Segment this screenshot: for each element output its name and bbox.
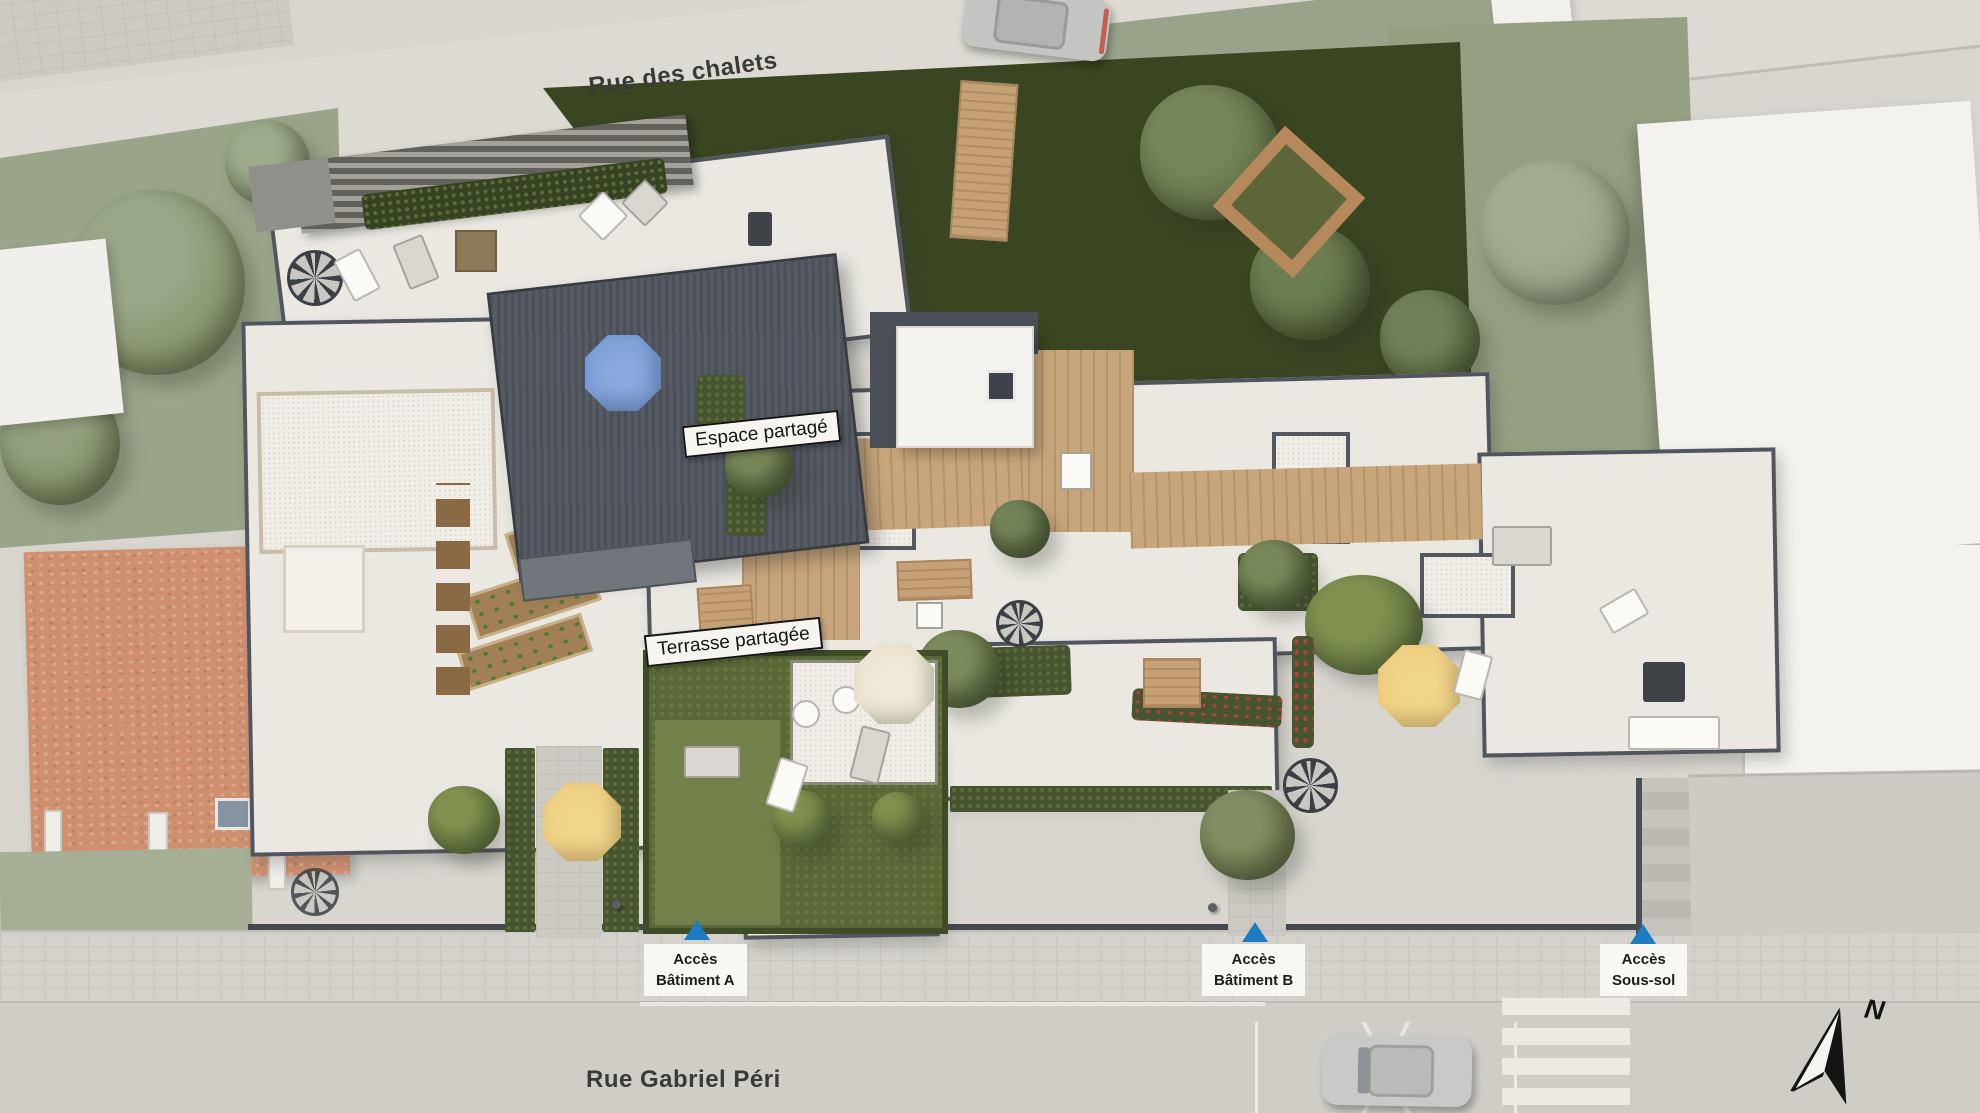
parasol — [1378, 645, 1460, 727]
access-arrow-icon — [1630, 924, 1656, 944]
access-sous-sol-label: Accès Sous-sol — [1600, 944, 1687, 996]
spiral-staircase — [287, 250, 343, 306]
perimeter-wall — [248, 924, 1710, 930]
site-plan: Rue des chalets Rue Gabriel Péri Espace … — [0, 0, 1980, 1113]
tree — [1238, 540, 1312, 610]
table — [748, 212, 772, 246]
neighboring-building-left — [0, 239, 124, 427]
sofa — [1628, 716, 1720, 750]
roof-window — [986, 370, 1016, 402]
planter-box — [455, 230, 497, 272]
roof-vent — [1060, 452, 1092, 490]
lamp-post — [1208, 903, 1217, 912]
grass-strip-bottom-left — [0, 848, 253, 936]
spiral-staircase — [1283, 758, 1338, 813]
road-marking-line — [640, 1002, 1265, 1006]
access-line1: Accès — [1622, 951, 1666, 968]
street-label-bottom: Rue Gabriel Péri — [586, 1066, 781, 1094]
table — [1143, 658, 1201, 708]
tree — [872, 792, 924, 842]
hedge — [505, 748, 535, 932]
access-arrow-icon — [684, 920, 710, 940]
spiral-staircase — [291, 868, 339, 916]
tree — [1200, 790, 1295, 880]
rooflight-patch — [283, 545, 365, 633]
car-roof — [1368, 1044, 1435, 1097]
table — [684, 746, 740, 778]
access-line2: Bâtiment B — [1214, 972, 1293, 989]
access-line2: Sous-sol — [1612, 972, 1675, 989]
access-batiment-b-label: Accès Bâtiment B — [1202, 944, 1305, 996]
parasol — [854, 644, 934, 724]
flower-planter — [1292, 636, 1314, 748]
table — [1643, 662, 1685, 702]
tree — [1480, 160, 1630, 305]
access-batiment-a-label: Accès Bâtiment A — [644, 944, 747, 996]
driveway — [1689, 769, 1980, 936]
tree — [990, 500, 1050, 558]
car-windshield — [1358, 1047, 1371, 1093]
access-arrow-icon — [1242, 922, 1268, 942]
spiral-staircase — [996, 600, 1043, 647]
access-line2: Bâtiment A — [656, 972, 735, 989]
entry-canopy — [248, 157, 335, 232]
tree — [428, 786, 500, 854]
wood-raft — [950, 80, 1019, 242]
bench-row — [436, 483, 470, 695]
crosswalk — [1502, 998, 1630, 1110]
hanging-chair — [792, 700, 820, 728]
car — [1321, 1035, 1472, 1108]
lamp-post — [612, 900, 621, 909]
skylight — [215, 798, 251, 830]
rue-gabriel-peri-road — [0, 1003, 1980, 1113]
table — [896, 559, 972, 602]
access-line1: Accès — [673, 951, 717, 968]
parasol — [543, 783, 621, 861]
wood-deck — [1129, 463, 1483, 548]
parasol — [585, 335, 661, 411]
north-label: N — [1863, 994, 1887, 1027]
access-line1: Accès — [1231, 951, 1275, 968]
car-roof — [992, 0, 1069, 51]
dining-set — [1492, 526, 1552, 566]
wood-deck — [1028, 350, 1134, 532]
roof-vent — [916, 602, 943, 629]
